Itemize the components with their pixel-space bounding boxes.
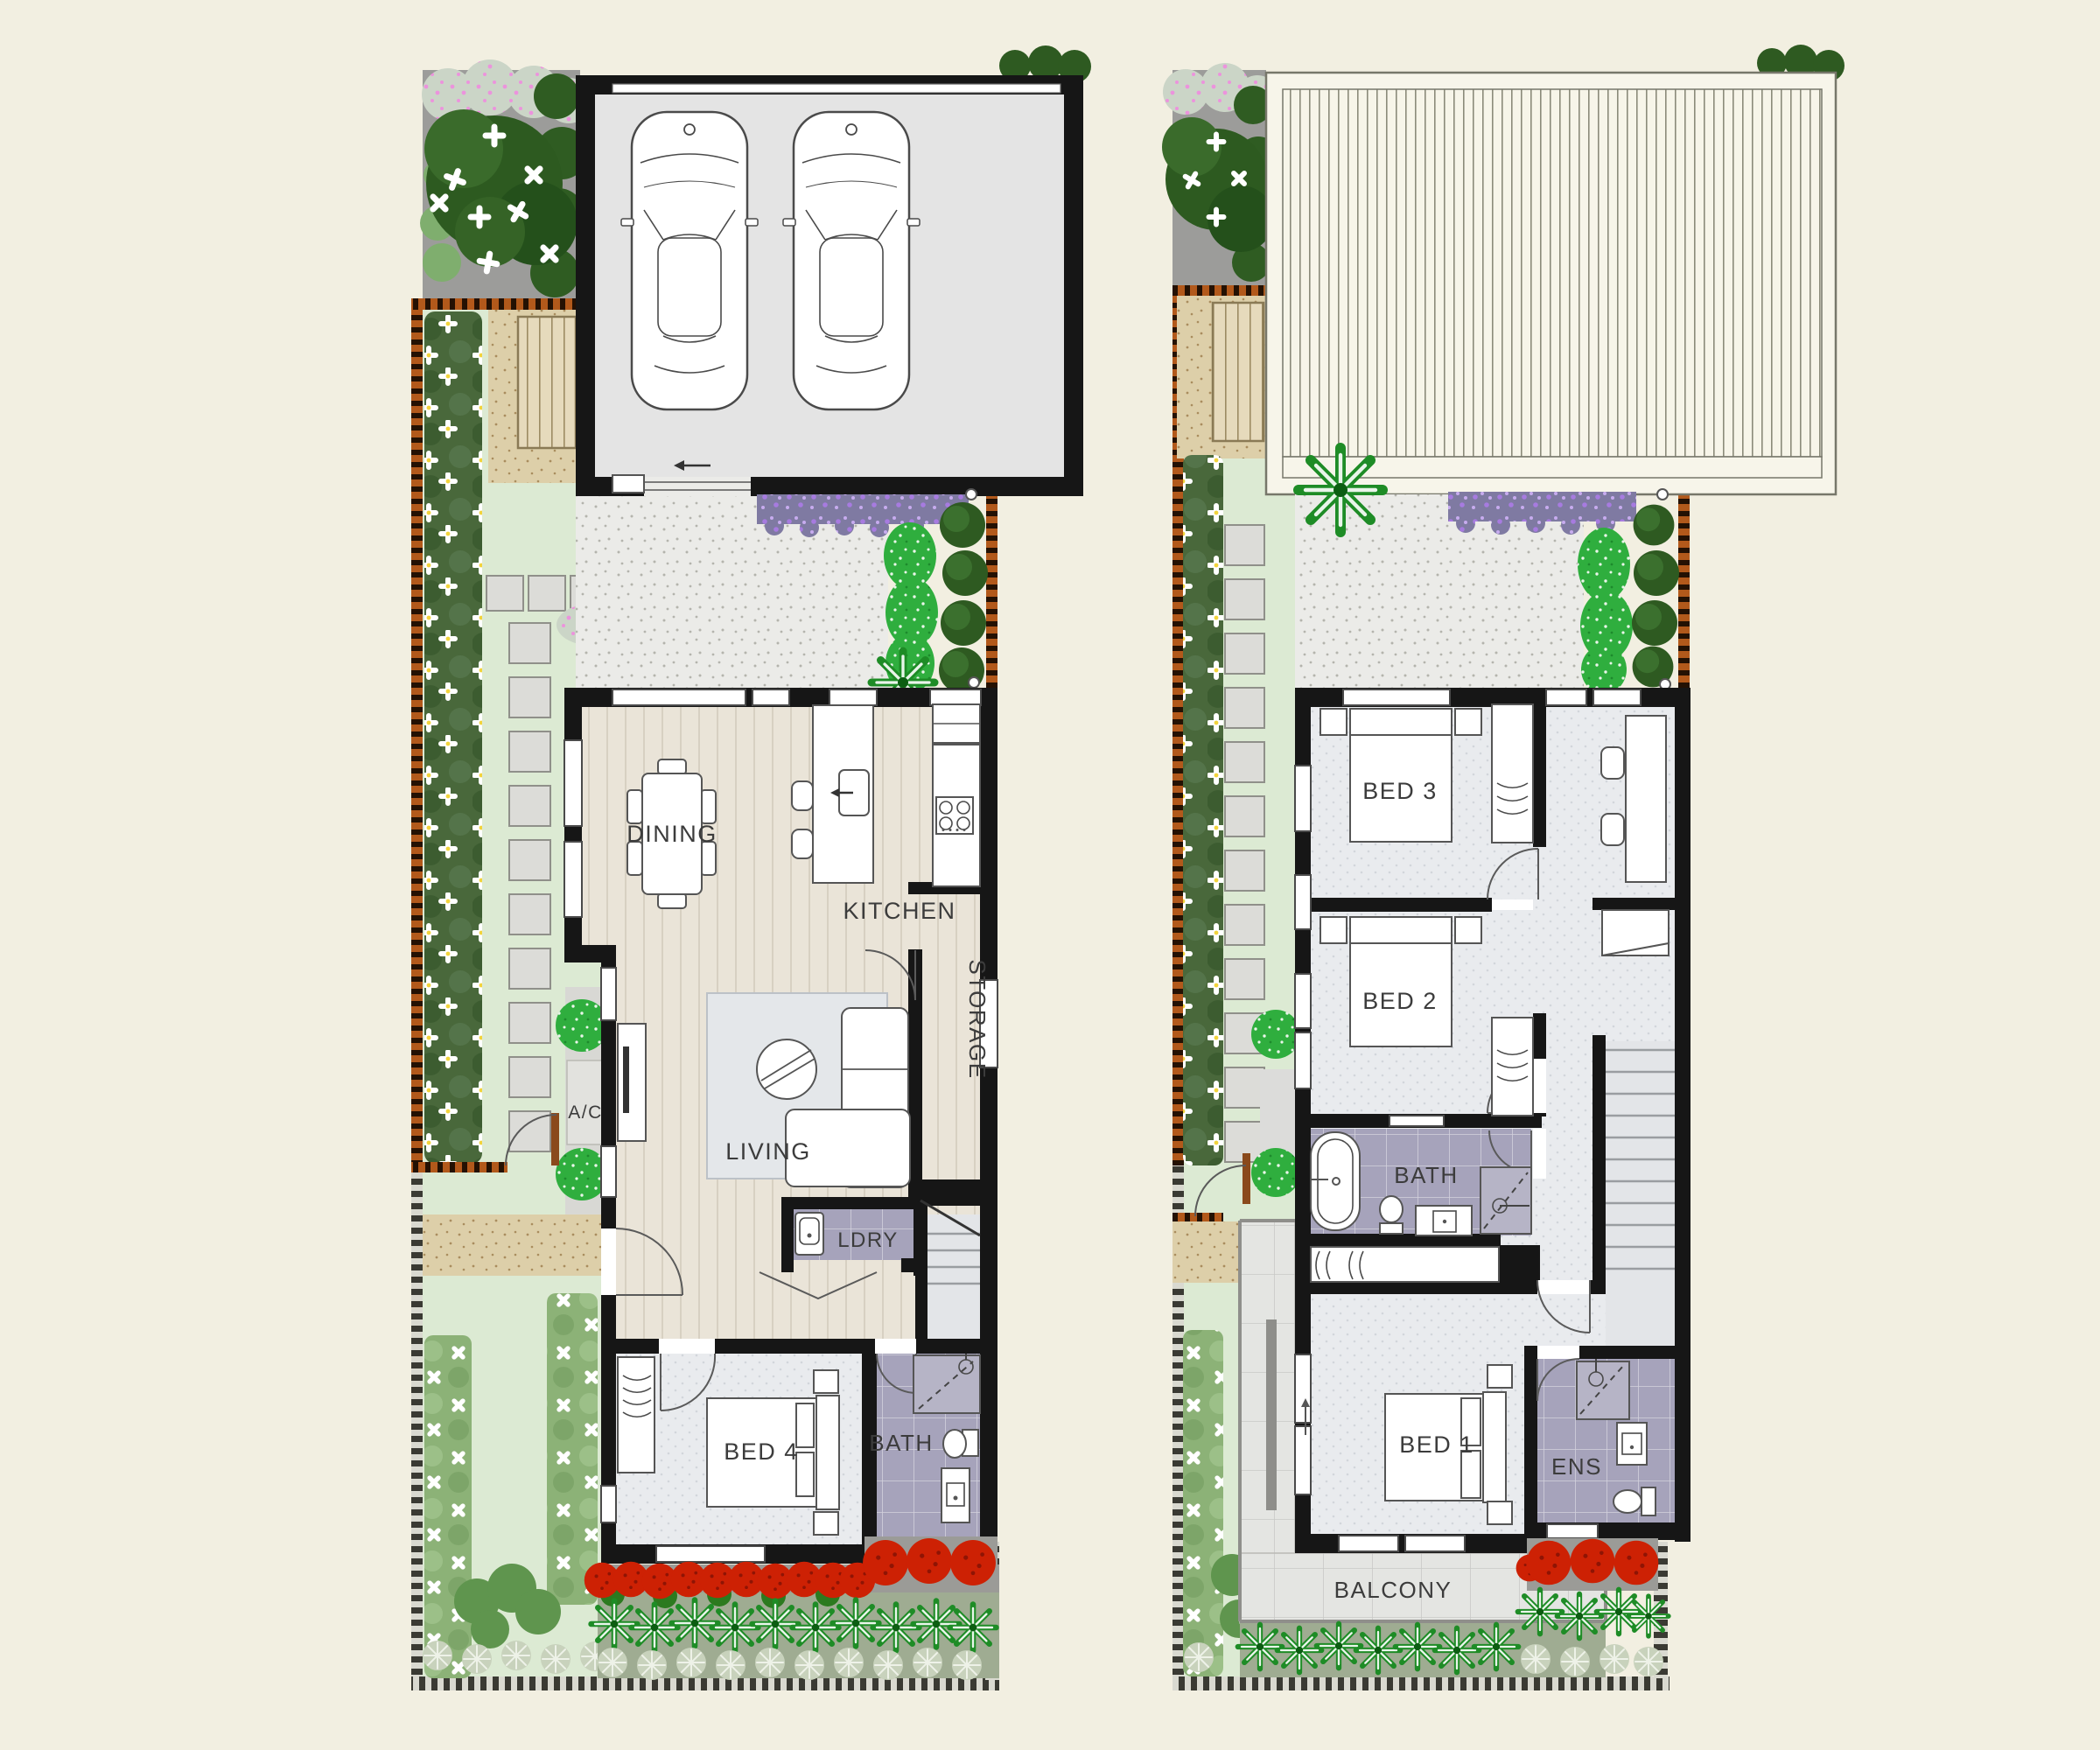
fence-right-courtyard bbox=[1678, 492, 1690, 693]
side-table bbox=[814, 1370, 838, 1393]
shrub bbox=[1251, 1148, 1300, 1197]
room-label-living: LIVING bbox=[725, 1138, 811, 1165]
fence-left-timber bbox=[411, 310, 423, 1164]
service-pad bbox=[1260, 1069, 1295, 1157]
car-top-view bbox=[621, 112, 758, 409]
towel-niche bbox=[1389, 1116, 1444, 1126]
room-label-laundry: LDRY bbox=[837, 1228, 899, 1252]
red-flower-row bbox=[1516, 1539, 1659, 1585]
vanity bbox=[941, 1468, 969, 1522]
bush-column bbox=[939, 502, 988, 693]
gate-leaf bbox=[1242, 1153, 1250, 1204]
fence-left-dark bbox=[411, 1164, 423, 1678]
entry-step bbox=[612, 475, 644, 493]
wardrobe bbox=[1492, 1018, 1533, 1116]
stairwell bbox=[1606, 1041, 1675, 1347]
fence-right-courtyard bbox=[986, 490, 997, 693]
chair bbox=[1601, 814, 1624, 845]
timber-deck bbox=[1213, 303, 1263, 441]
fence-bottom bbox=[1172, 1676, 1669, 1690]
spiky-shrub-column bbox=[1578, 528, 1633, 694]
wardrobe bbox=[1492, 704, 1533, 843]
garage-entry-opening bbox=[644, 477, 751, 496]
fence-top bbox=[1172, 285, 1269, 296]
bed-headboard bbox=[816, 1396, 839, 1509]
room-label-bed2: BED 2 bbox=[1362, 988, 1438, 1014]
bed3-furniture bbox=[1320, 704, 1533, 843]
palm-plant bbox=[1298, 448, 1382, 532]
room-label-ac: A/C bbox=[568, 1102, 603, 1123]
gate-leaf bbox=[551, 1113, 559, 1165]
chair bbox=[1601, 747, 1624, 779]
wardrobe bbox=[618, 1357, 654, 1473]
hedge-light bbox=[424, 1335, 472, 1678]
shrub bbox=[1251, 1010, 1300, 1059]
hedge-light bbox=[1183, 1330, 1223, 1676]
floor-plan-sheet: A/C bbox=[0, 0, 2100, 1750]
toilet bbox=[1380, 1196, 1403, 1222]
room-label-storage: STORAGE bbox=[964, 959, 990, 1079]
side-table bbox=[814, 1512, 838, 1535]
bed-headboard bbox=[1483, 1392, 1506, 1502]
garage bbox=[576, 75, 1083, 496]
coffee-table bbox=[757, 1039, 816, 1099]
room-label-balcony: BALCONY bbox=[1334, 1577, 1452, 1603]
laundry bbox=[795, 1213, 823, 1255]
hedge-flowering bbox=[1183, 455, 1223, 1165]
bush-column bbox=[1632, 505, 1679, 688]
linen-robe bbox=[1311, 1247, 1499, 1282]
first-floor-site: BED 3 BED 2 BATH BED 1 bbox=[1162, 45, 1844, 1690]
side-table bbox=[1487, 1501, 1512, 1524]
timber-deck bbox=[518, 317, 576, 448]
side-table bbox=[1487, 1365, 1512, 1388]
tree-cluster bbox=[420, 59, 591, 297]
room-label-bath: BATH bbox=[869, 1430, 933, 1456]
shower bbox=[1577, 1361, 1629, 1419]
room-label-bath-first: BATH bbox=[1394, 1162, 1458, 1188]
garage-door bbox=[612, 84, 1060, 93]
car-top-view bbox=[783, 112, 920, 409]
tv-unit bbox=[618, 1024, 646, 1141]
downpipe bbox=[966, 489, 976, 500]
room-label-bed1: BED 1 bbox=[1399, 1431, 1474, 1458]
room-label-kitchen: KITCHEN bbox=[843, 898, 955, 924]
fence-top bbox=[411, 298, 583, 310]
room-label-bed4: BED 4 bbox=[724, 1438, 799, 1465]
room-label-bed3: BED 3 bbox=[1362, 778, 1438, 804]
room-label-dining: DINING bbox=[626, 821, 717, 847]
downpipe bbox=[969, 677, 979, 688]
gate-fence bbox=[411, 1162, 507, 1172]
hedge-flowering bbox=[424, 311, 482, 1164]
fence-bottom bbox=[411, 1676, 999, 1690]
room-label-ensuite: ENS bbox=[1551, 1453, 1602, 1480]
hedge-light bbox=[547, 1293, 598, 1605]
privacy-screen bbox=[1266, 1319, 1277, 1510]
ground-floor-site: A/C bbox=[411, 45, 1091, 1690]
floorplan-canvas: A/C bbox=[0, 0, 2100, 1750]
tv bbox=[623, 1046, 629, 1113]
kitchen-bench bbox=[933, 704, 980, 886]
vanity bbox=[1617, 1423, 1647, 1465]
hall-robe bbox=[1311, 1247, 1499, 1282]
toilet bbox=[1613, 1490, 1641, 1513]
downpipe bbox=[1657, 489, 1668, 500]
study-nook bbox=[1601, 716, 1669, 955]
toilet bbox=[943, 1430, 966, 1458]
desk bbox=[1626, 716, 1666, 882]
garage-roof bbox=[1266, 73, 1836, 494]
